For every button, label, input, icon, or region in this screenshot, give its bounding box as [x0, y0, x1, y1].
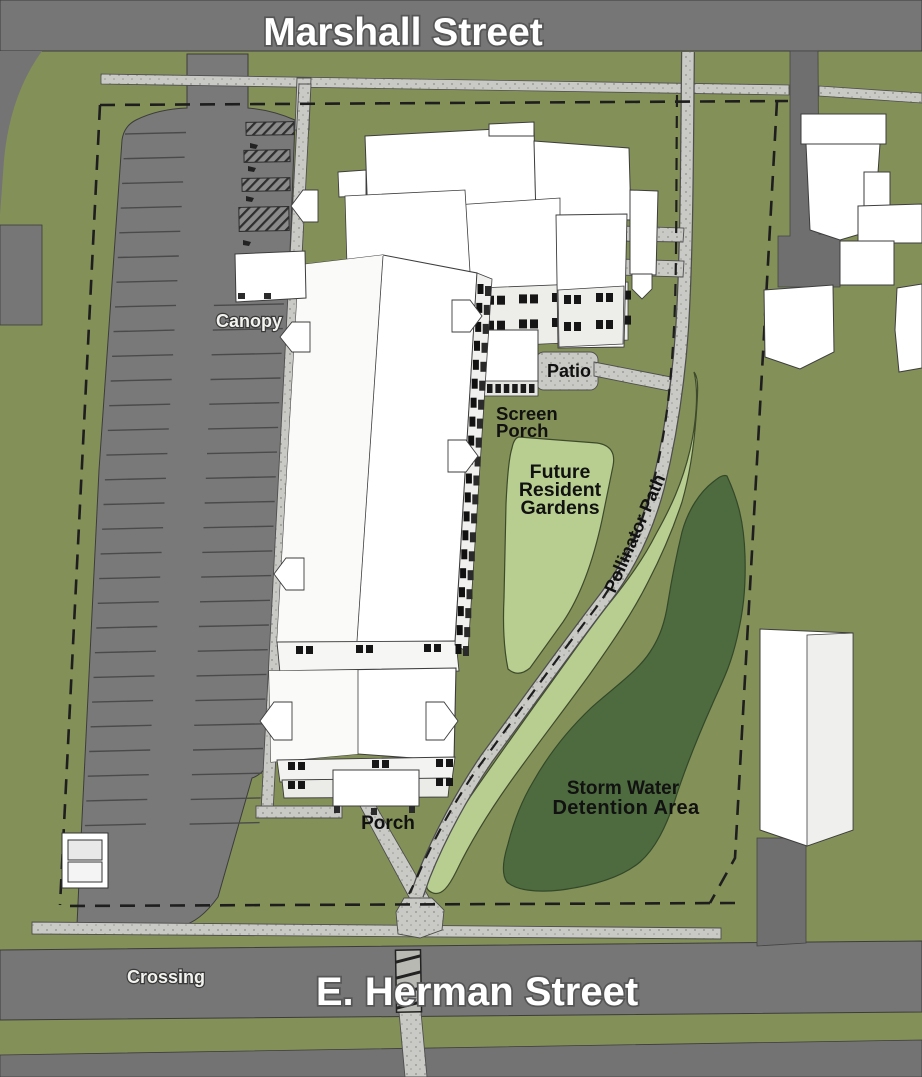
svg-text:Marshall Street: Marshall Street: [263, 11, 543, 54]
svg-text:Canopy: Canopy: [216, 311, 282, 331]
svg-text:E. Herman Street: E. Herman Street: [316, 970, 638, 1014]
svg-text:Porch: Porch: [361, 813, 415, 834]
svg-text:Gardens: Gardens: [520, 497, 599, 519]
svg-text:Detention Area: Detention Area: [552, 797, 700, 819]
svg-text:Patio: Patio: [547, 361, 591, 381]
svg-text:Crossing: Crossing: [127, 967, 205, 987]
svg-text:Porch: Porch: [496, 420, 548, 441]
svg-text:Storm Water: Storm Water: [567, 778, 680, 799]
